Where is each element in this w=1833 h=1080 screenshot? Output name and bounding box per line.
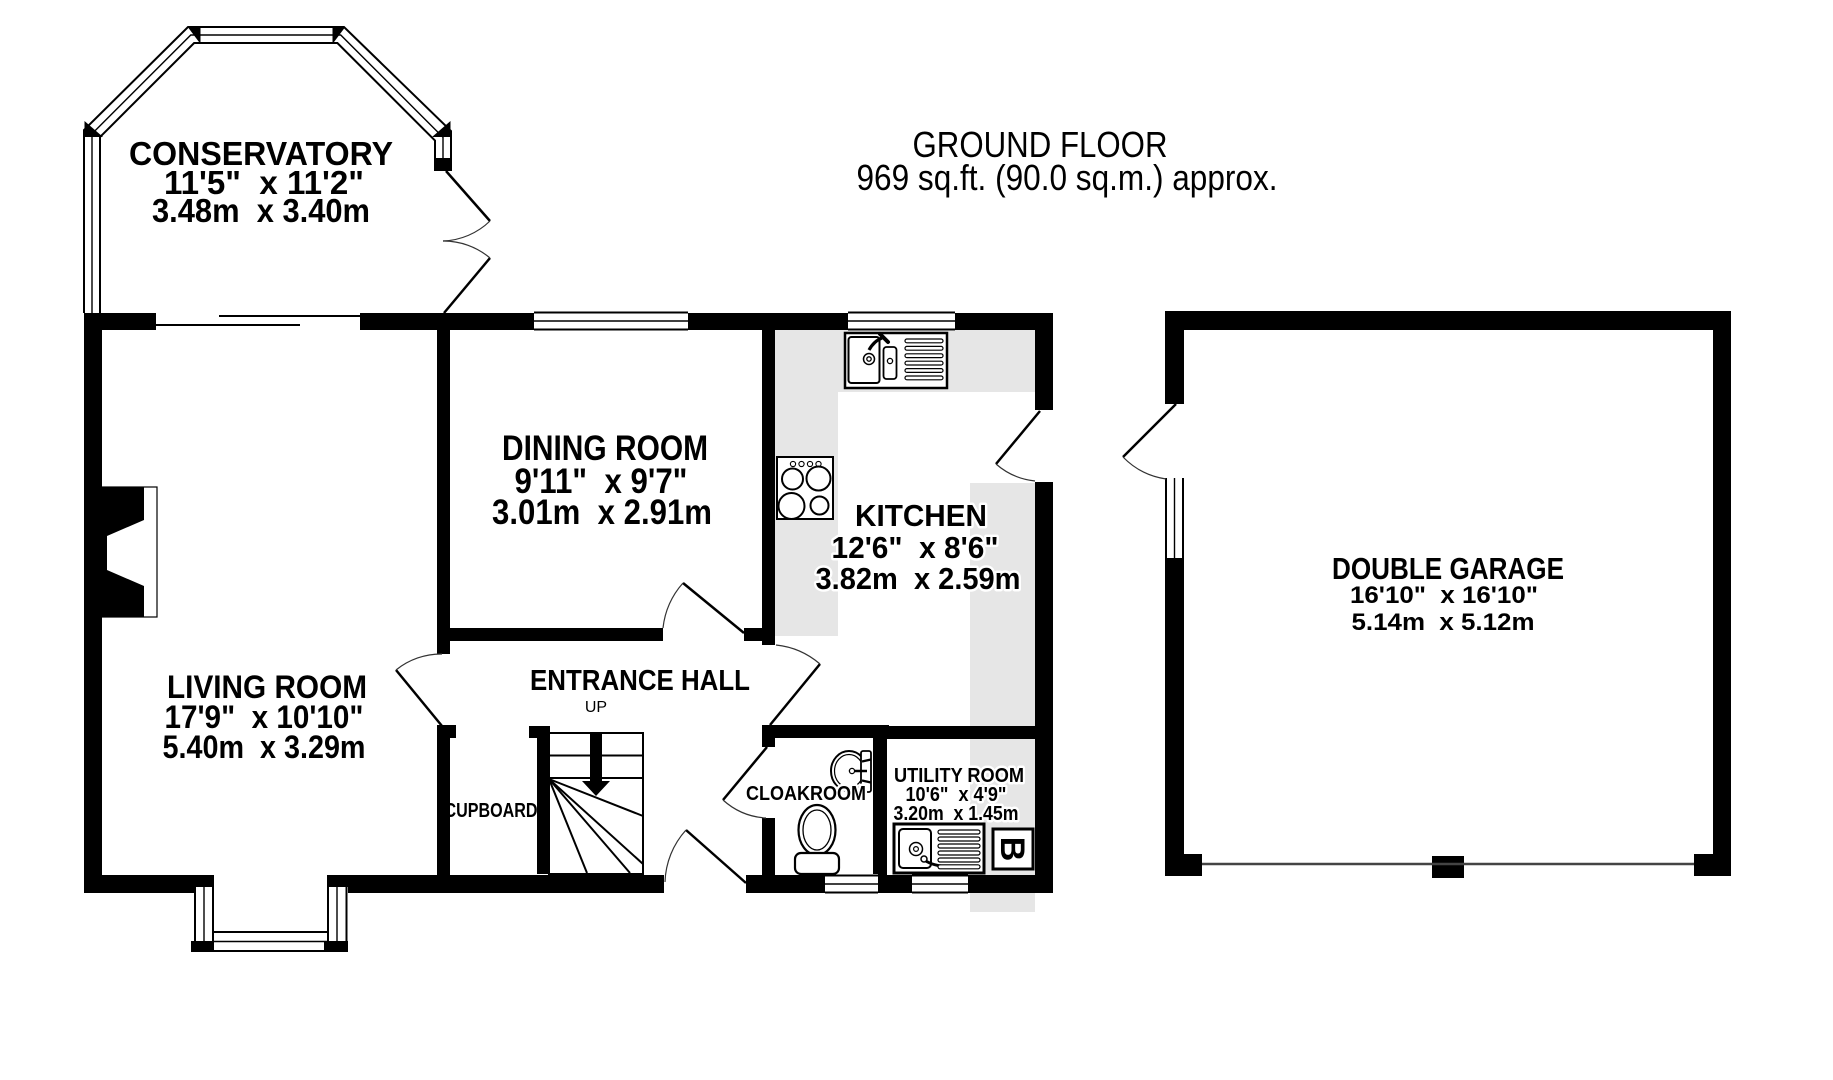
svg-text:CLOAKROOM: CLOAKROOM (746, 783, 866, 805)
svg-text:ENTRANCE HALL: ENTRANCE HALL (530, 665, 750, 697)
svg-text:16'10" x 16'10": 16'10" x 16'10" (1350, 582, 1538, 609)
svg-text:KITCHEN: KITCHEN (855, 498, 987, 533)
svg-text:12'6" x 8'6": 12'6" x 8'6" (832, 530, 999, 565)
svg-text:3.48m x 3.40m: 3.48m x 3.40m (152, 192, 370, 229)
svg-text:3.01m x 2.91m: 3.01m x 2.91m (492, 493, 712, 532)
svg-text:3.20m x 1.45m: 3.20m x 1.45m (894, 803, 1019, 825)
svg-text:5.14m x 5.12m: 5.14m x 5.12m (1352, 609, 1535, 636)
svg-text:B: B (993, 837, 1031, 862)
svg-text:969 sq.ft. (90.0 sq.m.) approx: 969 sq.ft. (90.0 sq.m.) approx. (857, 157, 1278, 198)
svg-text:3.82m x 2.59m: 3.82m x 2.59m (816, 561, 1021, 596)
svg-text:CUPBOARD: CUPBOARD (445, 800, 538, 822)
svg-text:5.40m x 3.29m: 5.40m x 3.29m (163, 729, 366, 765)
svg-text:UP: UP (585, 699, 607, 716)
svg-text:DOUBLE GARAGE: DOUBLE GARAGE (1332, 551, 1564, 586)
